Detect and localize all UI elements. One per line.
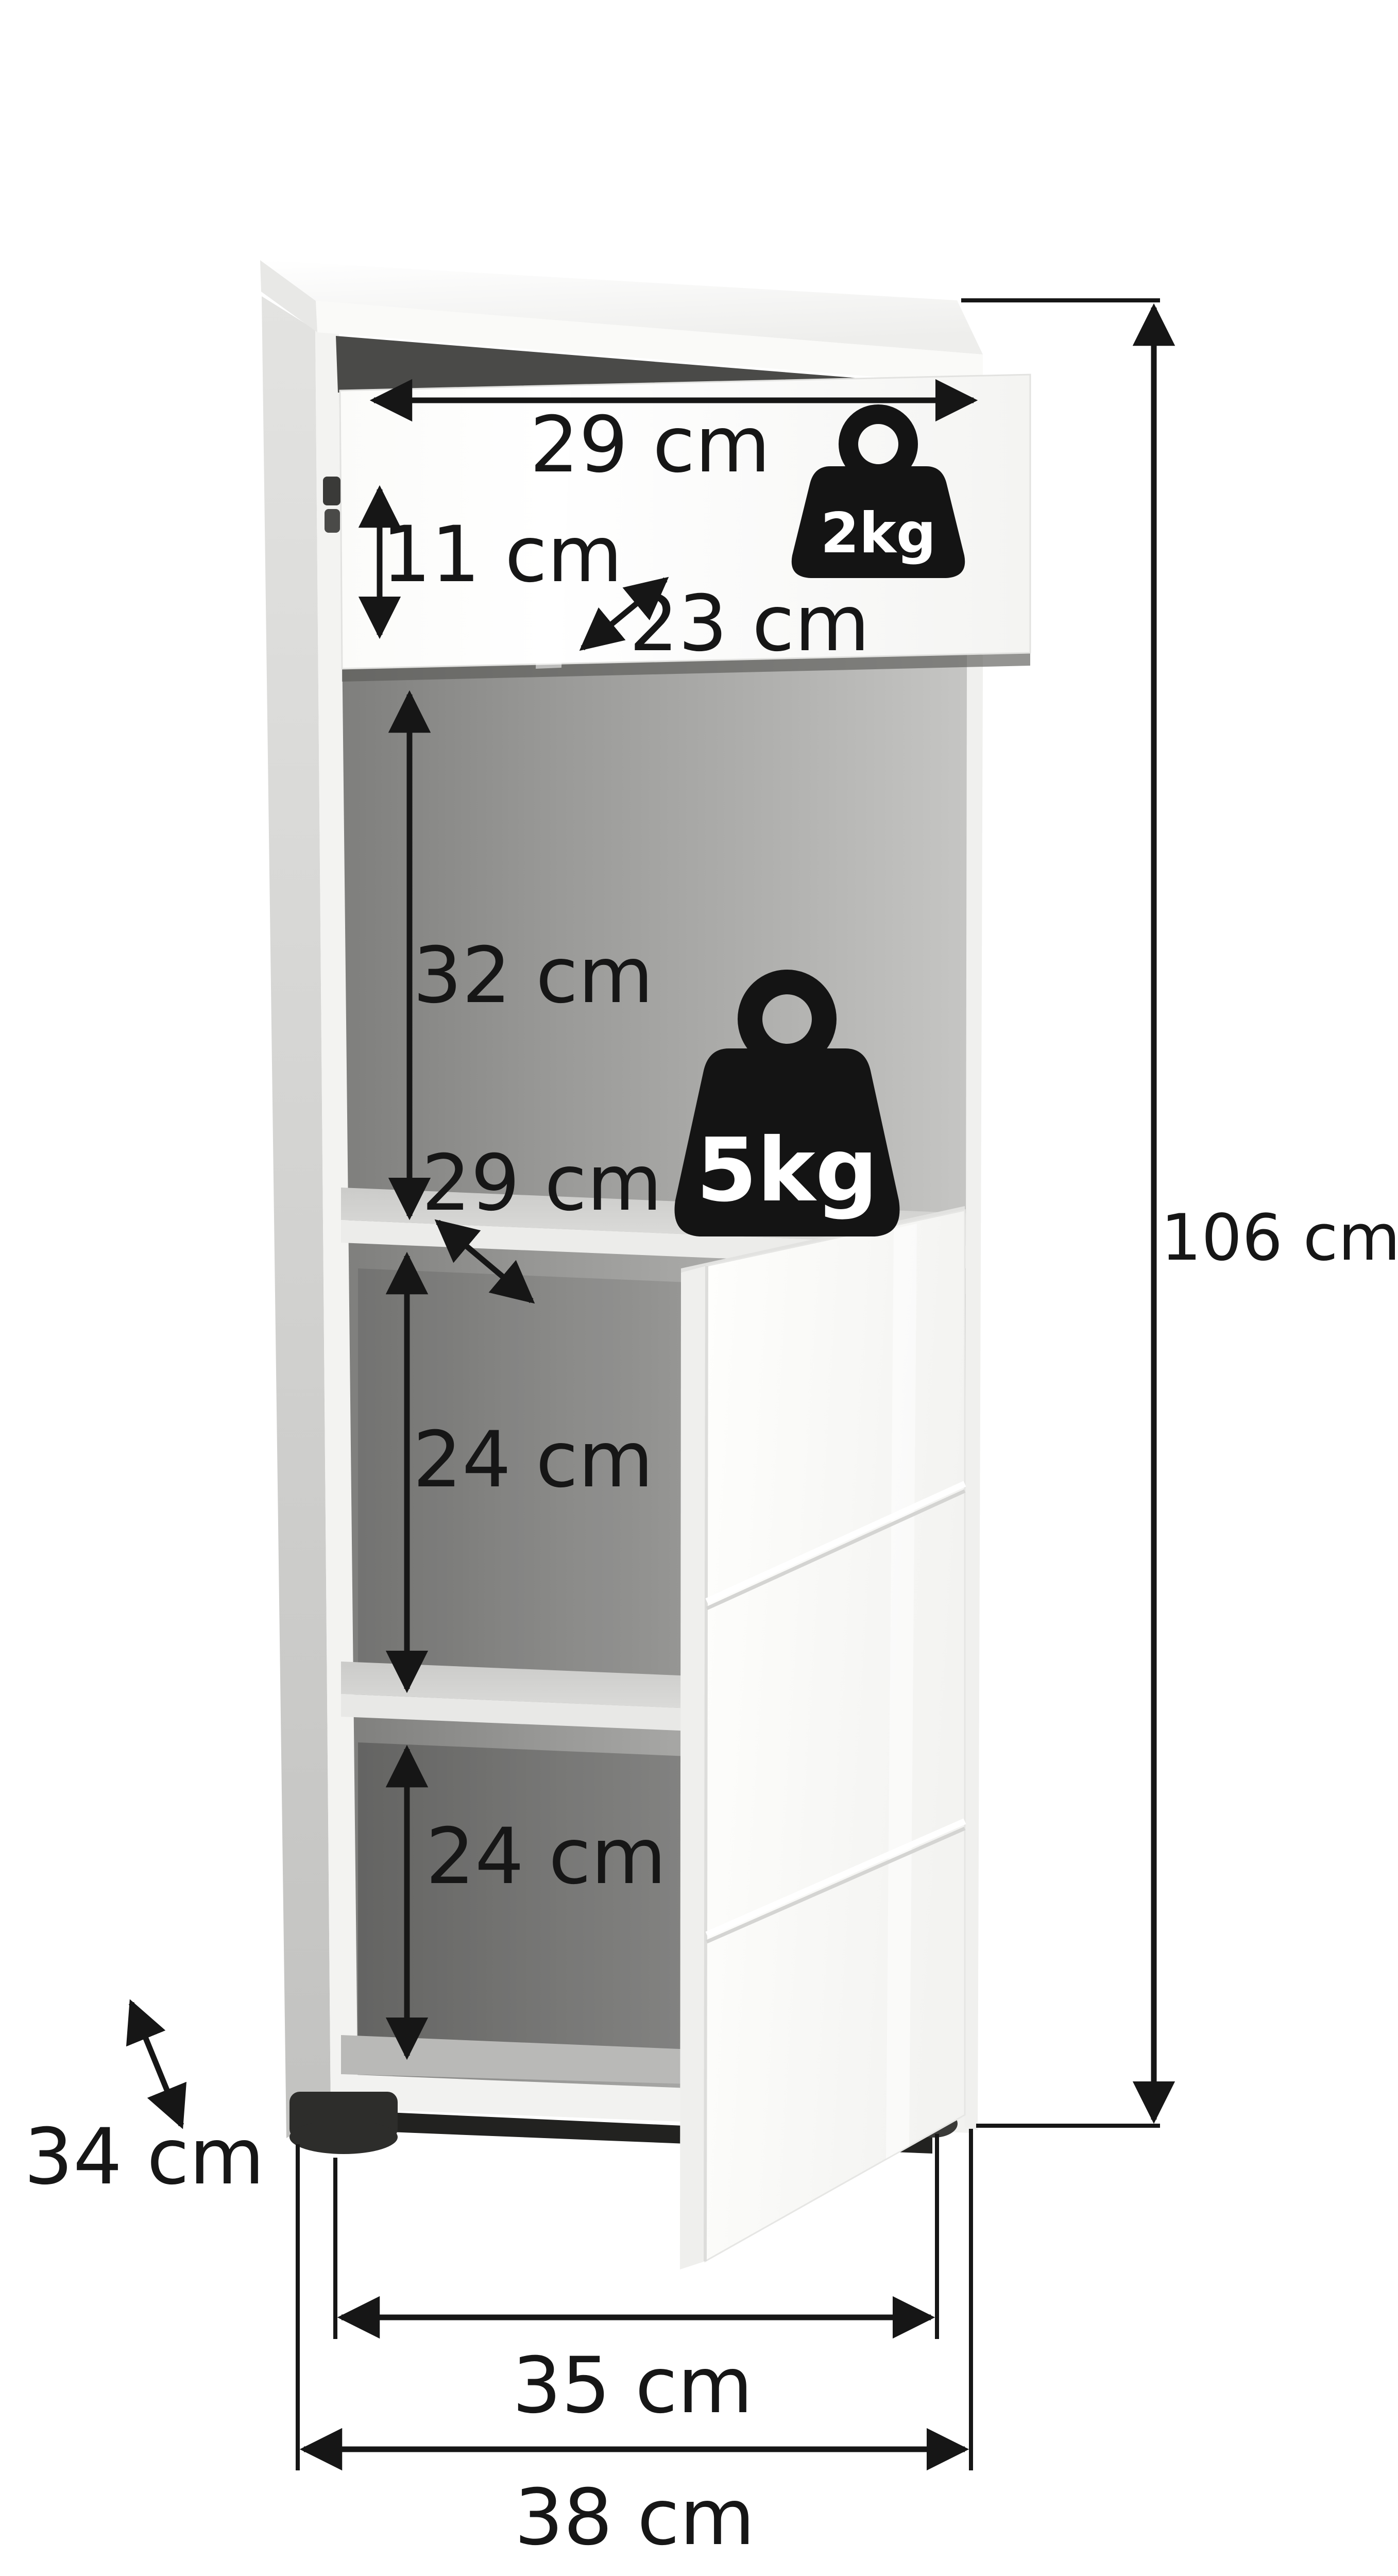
door-edge-line xyxy=(705,1266,707,2261)
shelf-load-label: 5kg xyxy=(696,1120,878,1222)
cabinet-dimension-diagram: 2kg 5kg 29 cm 11 cm 23 cm 32 cm 29 cm 24… xyxy=(0,0,1398,2576)
door-free-edge-band xyxy=(680,1266,707,2269)
shelf-depth-label: 29 cm xyxy=(421,1139,662,1228)
drawer-depth-label: 23 cm xyxy=(629,579,870,669)
drawer-slide-hardware xyxy=(323,477,340,505)
drawer-height-label: 11 cm xyxy=(382,510,622,600)
overall-width-label: 38 cm xyxy=(514,2473,755,2563)
overall-depth-label: 34 cm xyxy=(24,2112,264,2202)
bottom-compartment-height-label: 24 cm xyxy=(425,1812,666,1902)
drawer-load-label: 2kg xyxy=(821,501,936,566)
door xyxy=(680,1206,965,2269)
open-compartment-height-label: 32 cm xyxy=(413,931,653,1021)
door-front xyxy=(705,1210,965,2261)
left-foot xyxy=(289,2092,398,2154)
inner-width-label: 35 cm xyxy=(512,2341,753,2431)
drawer-width-label: 29 cm xyxy=(530,400,770,490)
middle-compartment-height-label: 24 cm xyxy=(413,1415,653,1505)
drawer-slide-hardware-2 xyxy=(325,509,340,533)
overall-height-label: 106 cm xyxy=(1161,1201,1398,1275)
